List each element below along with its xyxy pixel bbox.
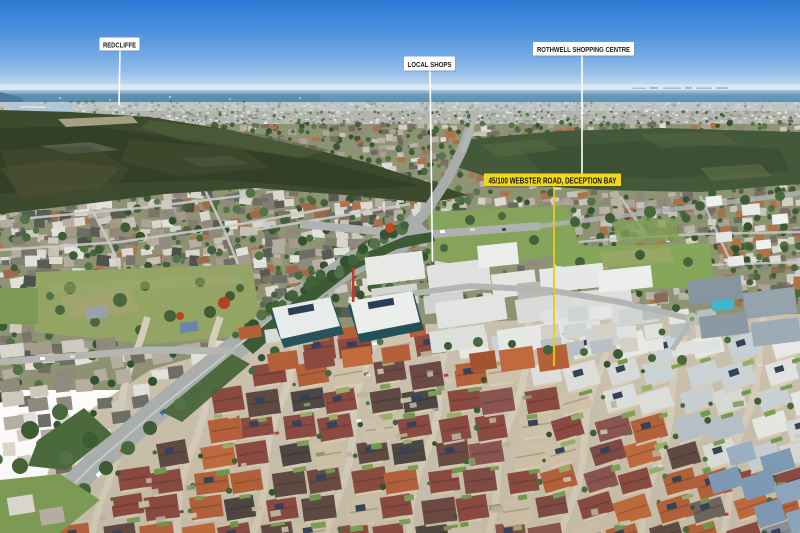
svg-text:LOCAL SHOPS: LOCAL SHOPS (408, 60, 452, 69)
svg-text:45/100 WEBSTER ROAD, DECEPTION: 45/100 WEBSTER ROAD, DECEPTION BAY (489, 176, 617, 185)
svg-text:REDCLIFFE: REDCLIFFE (103, 40, 136, 49)
svg-text:ROTHWELL SHOPPING CENTRE: ROTHWELL SHOPPING CENTRE (537, 45, 630, 54)
